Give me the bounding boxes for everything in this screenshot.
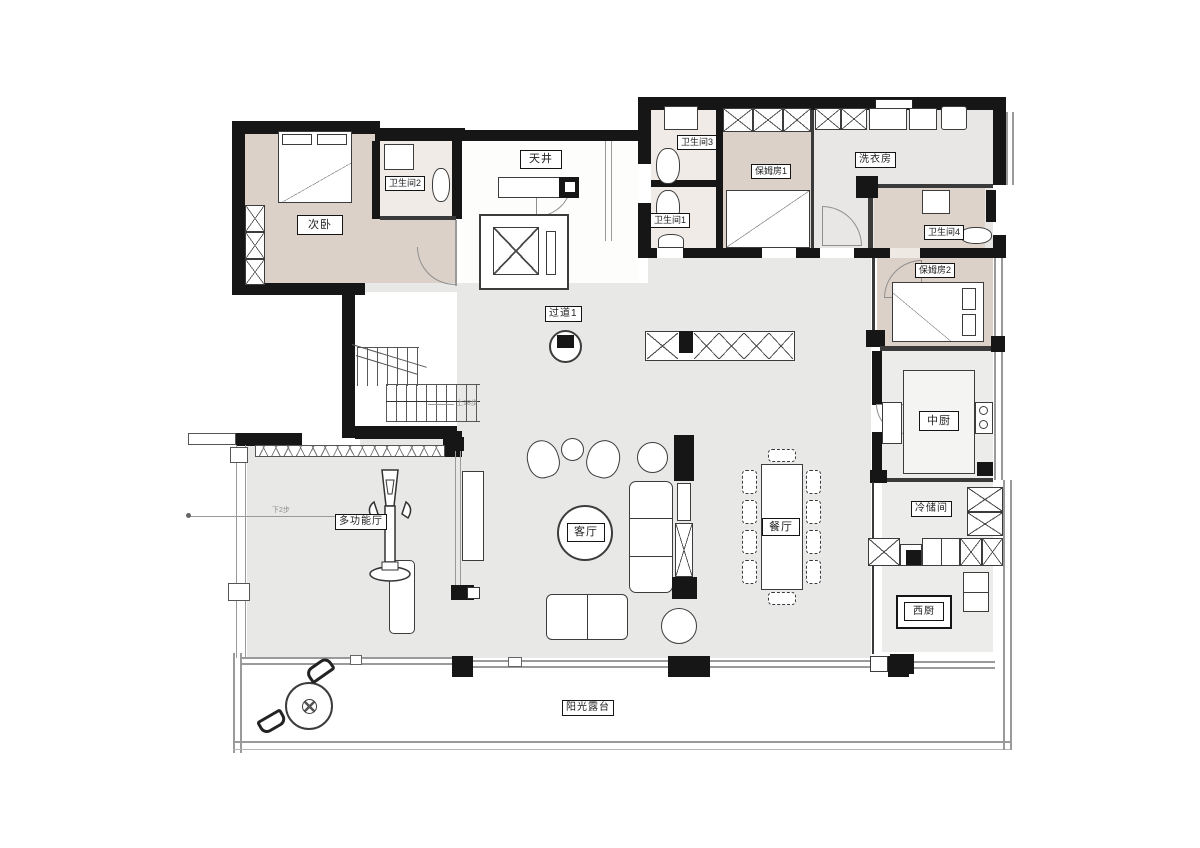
pouf: [661, 608, 697, 644]
room-label-west-kitchen: 西厨: [904, 602, 944, 621]
cabinet-cell: [769, 333, 793, 359]
terrace-chair: [256, 708, 288, 736]
cabinet-block: [906, 550, 921, 565]
window-line: [611, 141, 612, 241]
cabinet-cell: [868, 538, 900, 566]
room-label-terrace: 阳光露台: [562, 700, 614, 716]
projection-screen: [462, 471, 484, 561]
toilet: [656, 148, 680, 184]
wall-segment: [872, 258, 875, 332]
round-table: [637, 442, 668, 473]
window-line: [1006, 112, 1008, 185]
door-gap: [657, 248, 683, 258]
wall-segment: [460, 449, 461, 587]
closet-cell: [723, 108, 753, 132]
window-line: [1001, 258, 1003, 480]
pillow: [962, 288, 976, 310]
wardrobe-cell: [245, 259, 265, 285]
dining-chair: [768, 592, 796, 605]
leader-line: [428, 404, 454, 405]
pillow: [962, 314, 976, 336]
cabinet-block: [679, 331, 693, 353]
wall-segment: [986, 190, 996, 222]
fridge: [963, 572, 989, 612]
tv-wall: [672, 577, 697, 599]
terrace-edge: [1010, 480, 1012, 750]
room-label-bath4: 卫生间4: [924, 225, 964, 240]
planter-block: [557, 335, 574, 348]
elevator-door: [546, 231, 556, 275]
window-line: [909, 667, 995, 669]
wardrobe-cell: [245, 232, 265, 259]
terrace-edge: [240, 653, 242, 753]
window-line: [473, 660, 668, 662]
toilet: [960, 227, 992, 244]
bed: [726, 190, 810, 248]
room-label-nanny1: 保姆房1: [751, 164, 791, 179]
terrace-chair: [304, 655, 336, 684]
wall-segment: [638, 110, 651, 164]
wall-segment: [866, 330, 885, 347]
dining-chair: [806, 560, 821, 584]
cabinet: [922, 538, 960, 566]
tv-niche: [677, 483, 691, 521]
wall-segment: [872, 351, 882, 405]
door-gap: [762, 248, 796, 258]
dining-chair: [742, 530, 757, 554]
tv-wall: [674, 435, 694, 481]
dining-chair: [742, 470, 757, 494]
wall-segment: [232, 121, 245, 295]
closet-cell: [783, 108, 811, 132]
sink: [922, 190, 950, 214]
dining-chair: [742, 560, 757, 584]
ledge-box: [188, 433, 236, 445]
window-line: [245, 445, 246, 658]
wall-segment: [993, 97, 1006, 185]
toilet: [432, 168, 450, 202]
wall-segment: [452, 141, 462, 219]
dimension-dot: [186, 513, 191, 518]
window-line: [710, 660, 888, 662]
wall-segment: [342, 295, 355, 438]
window-line: [994, 258, 996, 480]
cabinet: [869, 108, 907, 130]
window-line: [236, 445, 237, 658]
room-label-bath3: 卫生间3: [677, 135, 717, 150]
window-line: [710, 666, 888, 668]
wall-segment: [872, 482, 874, 654]
sink: [658, 234, 684, 248]
dining-chair: [768, 449, 796, 462]
storage-cell: [967, 487, 1003, 512]
terrace-edge: [233, 653, 235, 753]
wall-segment: [882, 478, 993, 482]
window-line: [909, 661, 995, 663]
wall-segment: [977, 462, 993, 476]
window-mullion: [230, 447, 248, 463]
room-label-living: 客厅: [567, 523, 605, 542]
terrace-edge: [233, 749, 1010, 750]
room-label-cold-storage: 冷储间: [911, 501, 952, 517]
side-table: [561, 438, 584, 461]
wall-segment: [668, 656, 710, 677]
wall-segment: [455, 220, 457, 286]
wall-segment: [375, 128, 465, 141]
terrace-edge: [233, 741, 1010, 743]
burner: [979, 406, 988, 415]
wall-segment: [716, 110, 723, 248]
door-gap: [890, 248, 920, 258]
storage-cell: [967, 512, 1003, 536]
door-gap: [820, 248, 854, 258]
floor-plan: 下2步 上18步 次卧 卫生间2 天井 卫生间3 保姆房1 洗衣房 卫生间1 卫…: [0, 0, 1200, 848]
room-label-bath2: 卫生间2: [385, 176, 425, 191]
washing-machine: [856, 176, 878, 198]
cabinet-cell: [841, 108, 867, 130]
wall-segment: [372, 141, 380, 219]
window-mullion: [508, 657, 522, 667]
dining-chair: [806, 530, 821, 554]
wall-segment: [452, 656, 473, 677]
sink: [664, 106, 698, 130]
step-annotation: 下2步: [272, 507, 290, 514]
kitchen-counter: [882, 402, 902, 444]
dining-chair: [742, 500, 757, 524]
pillow: [317, 134, 347, 145]
sink: [384, 144, 414, 170]
room-label-laundry: 洗衣房: [855, 152, 896, 168]
closet-cell: [753, 108, 783, 132]
elevator-car: [493, 227, 539, 275]
room-label-nanny2: 保姆房2: [915, 263, 955, 278]
dining-chair: [806, 500, 821, 524]
room-label-multi-hall: 多功能厅: [335, 514, 387, 530]
window-line: [1012, 112, 1014, 185]
wall-segment: [355, 426, 457, 439]
window-mullion: [228, 583, 250, 601]
terrace-table-center: [302, 699, 317, 714]
wardrobe-cell: [245, 205, 265, 232]
cabinet-cell: [815, 108, 841, 130]
floor-multi-hall: [247, 445, 460, 658]
cabinet: [909, 108, 937, 130]
dining-chair: [806, 470, 821, 494]
window-line: [241, 657, 452, 659]
tv-cabinet: [675, 523, 693, 577]
wall-segment: [991, 336, 1005, 352]
window-line: [473, 666, 668, 668]
room-label-corridor1: 过道1: [545, 306, 582, 322]
wall-segment: [455, 449, 456, 587]
wall-segment: [890, 654, 914, 674]
room-label-dining: 餐厅: [762, 518, 800, 536]
wall-segment: [380, 216, 456, 220]
window-mullion: [350, 655, 362, 665]
room-label-bedroom: 次卧: [297, 215, 343, 235]
wall-segment: [460, 130, 640, 141]
cabinet-cell: [694, 333, 719, 359]
dimension-line: [188, 516, 340, 517]
shelf-block-inset: [565, 182, 575, 192]
cabinet-cell: [744, 333, 769, 359]
wall-inset: [467, 587, 480, 599]
wall-segment: [880, 346, 993, 351]
cabinet-cell: [719, 333, 744, 359]
stairs-upper: [357, 347, 419, 386]
daybed: [546, 594, 628, 640]
stair-annotation: 上18步: [456, 400, 478, 407]
cabinet-cell: [982, 538, 1003, 566]
burner: [979, 420, 988, 429]
sofa: [629, 481, 673, 593]
cabinet-cell: [647, 333, 678, 359]
wall-segment: [811, 110, 814, 248]
room-label-cn-kitchen: 中厨: [919, 411, 959, 431]
wall-segment: [868, 184, 993, 188]
terrace-edge: [1003, 480, 1005, 750]
window-cabinet-strip: [255, 445, 445, 457]
cabinet: [870, 656, 888, 672]
window-line: [605, 141, 606, 241]
cabinet-cell: [960, 538, 982, 566]
room-label-bath1: 卫生间1: [650, 213, 690, 228]
wall-segment: [448, 437, 464, 451]
room-label-atrium: 天井: [520, 150, 562, 169]
window-line: [241, 663, 452, 665]
console-shelf: [498, 177, 560, 198]
utility-closet: [941, 106, 967, 130]
pillow: [282, 134, 312, 145]
